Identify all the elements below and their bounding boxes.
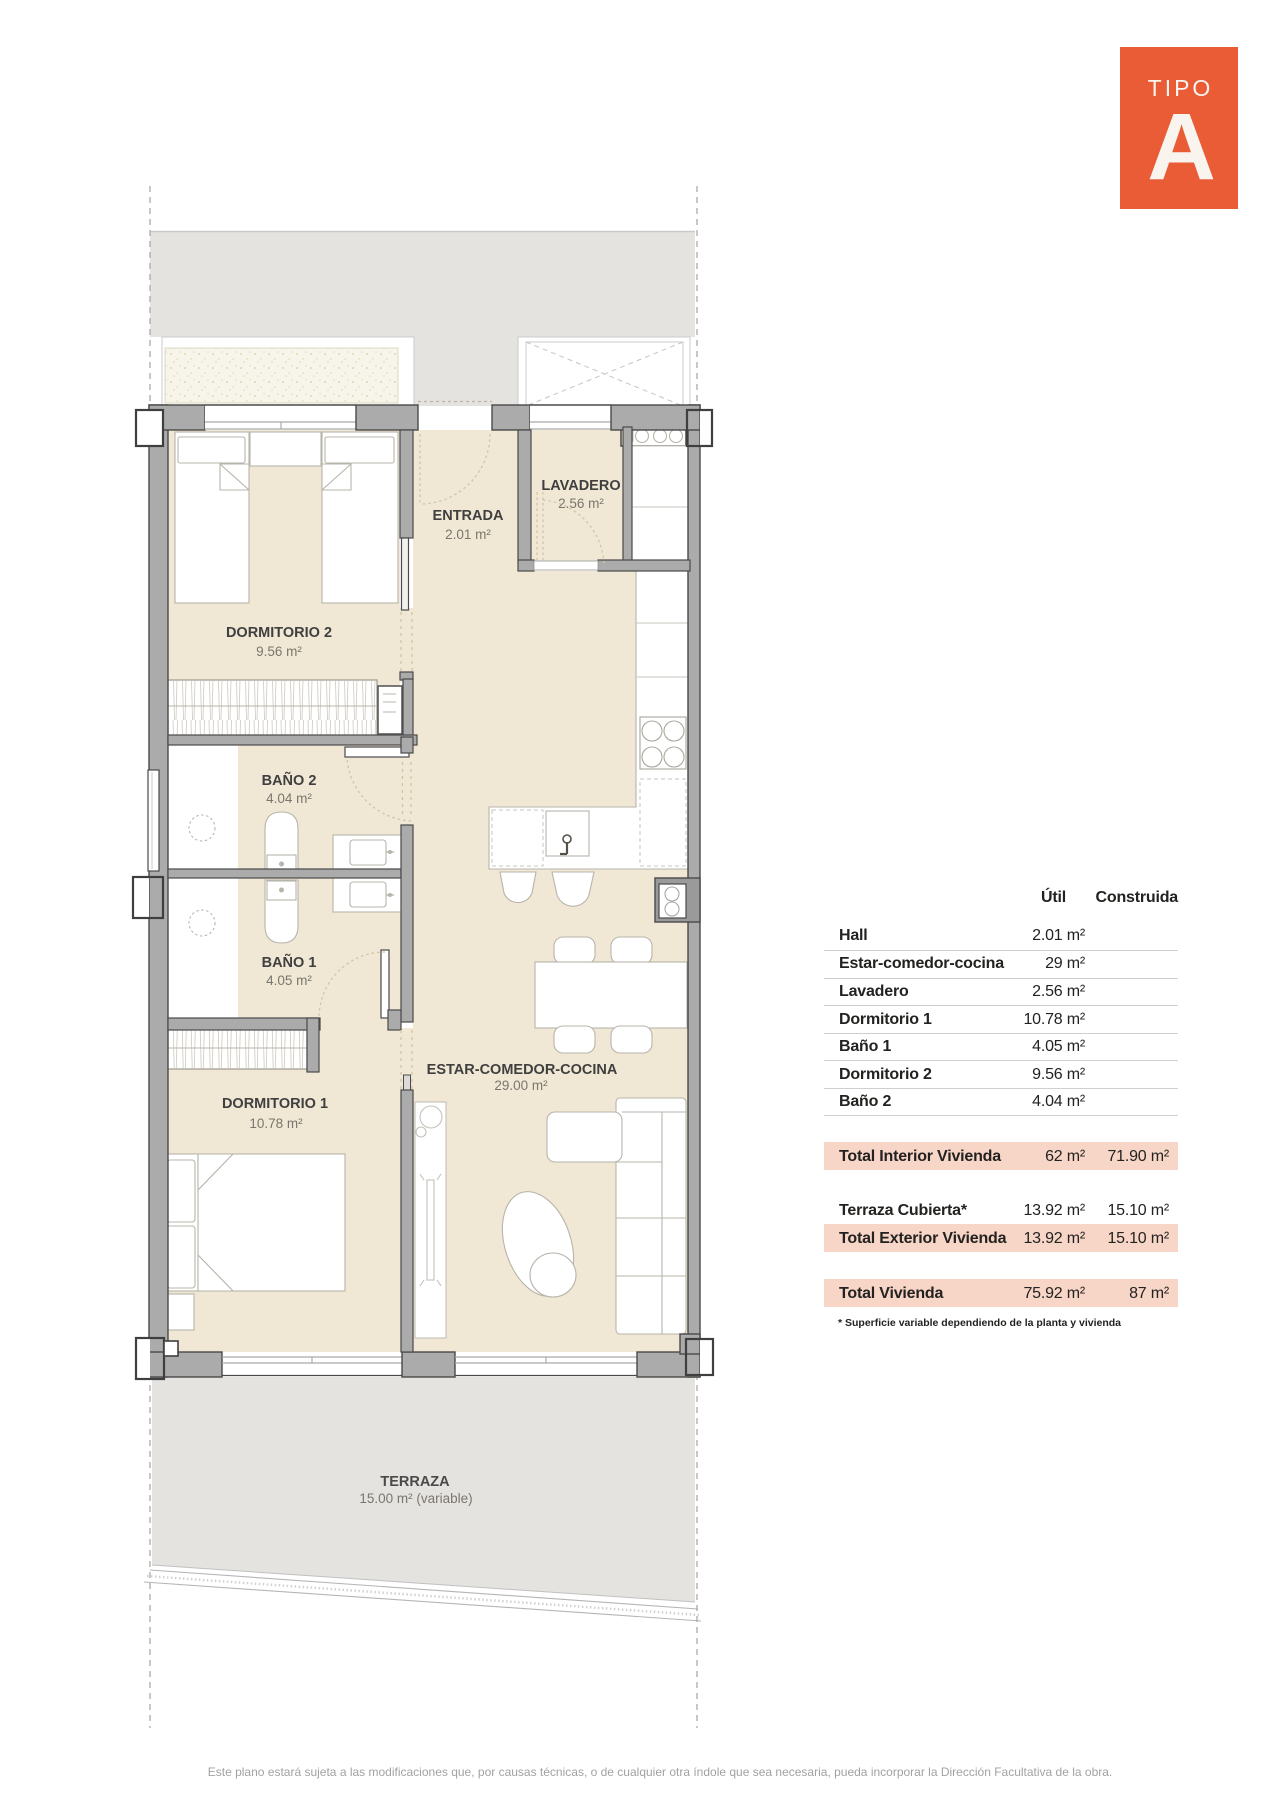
svg-text:BAÑO 1: BAÑO 1 bbox=[262, 953, 317, 971]
svg-text:DORMITORIO 2: DORMITORIO 2 bbox=[226, 625, 332, 641]
svg-text:4.05 m²: 4.05 m² bbox=[266, 973, 312, 988]
svg-text:DORMITORIO 1: DORMITORIO 1 bbox=[222, 1096, 328, 1112]
svg-text:2.01 m²: 2.01 m² bbox=[445, 527, 491, 542]
svg-text:15.00 m² (variable): 15.00 m² (variable) bbox=[359, 1491, 472, 1506]
svg-text:2.56 m²: 2.56 m² bbox=[558, 496, 604, 511]
svg-text:LAVADERO: LAVADERO bbox=[541, 478, 620, 494]
svg-text:TERRAZA: TERRAZA bbox=[380, 1474, 450, 1490]
svg-text:BAÑO 2: BAÑO 2 bbox=[262, 771, 317, 789]
svg-text:ESTAR-COMEDOR-COCINA: ESTAR-COMEDOR-COCINA bbox=[427, 1062, 618, 1078]
svg-text:10.78 m²: 10.78 m² bbox=[249, 1116, 303, 1131]
svg-text:29.00 m²: 29.00 m² bbox=[494, 1078, 548, 1093]
svg-text:4.04 m²: 4.04 m² bbox=[266, 791, 312, 806]
svg-text:9.56 m²: 9.56 m² bbox=[256, 644, 302, 659]
svg-text:ENTRADA: ENTRADA bbox=[433, 508, 504, 524]
